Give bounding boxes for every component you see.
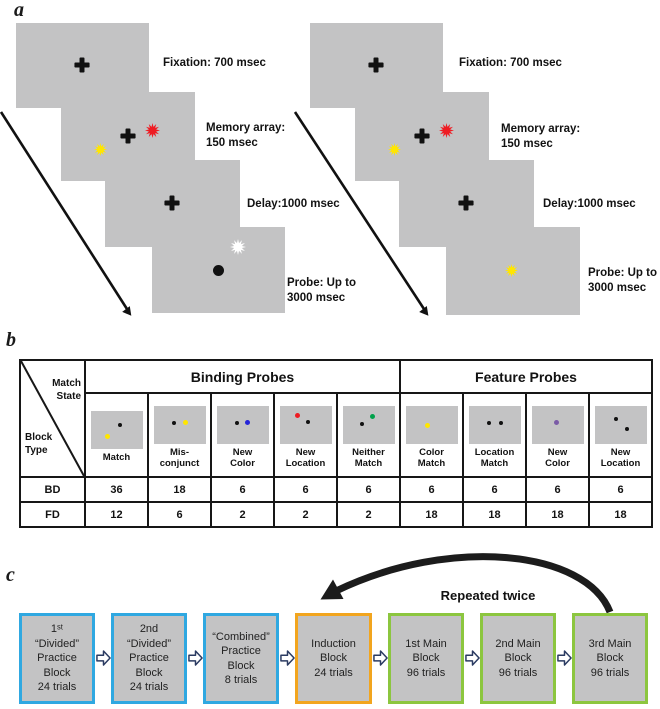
- panel-c-label: c: [6, 565, 15, 585]
- flowbox-line: 2nd: [140, 622, 158, 637]
- column-label: Color Match: [401, 447, 462, 470]
- flowbox-line: 1st Main: [405, 637, 447, 652]
- flowbox-main-2: 2nd Main Block 96 trials: [480, 613, 556, 704]
- flowbox-practice-2: 2nd “Divided” Practice Block 24 trials: [111, 613, 187, 704]
- mini-display-misconjunct: [154, 406, 206, 444]
- group-header-binding-probes: Binding Probes: [85, 360, 400, 393]
- flowbox-line: Block: [136, 666, 163, 681]
- fixation-caption-left: Fixation: 700 msec: [163, 56, 266, 71]
- probe-cell-new-location-binding: New Location: [274, 393, 337, 477]
- flowbox-line: Induction: [311, 637, 356, 652]
- mini-display-match: [91, 411, 143, 449]
- fd-value: 6: [148, 502, 211, 527]
- yellow-starburst-icon: [94, 143, 107, 156]
- flow-arrow-icon: [96, 649, 111, 667]
- flowbox-line: Block: [505, 651, 532, 666]
- flow-arrow-icon: [465, 649, 480, 667]
- probe-caption-left: Probe: Up to 3000 msec: [287, 276, 356, 305]
- red-starburst-icon: [145, 123, 160, 138]
- bd-value: 6: [337, 477, 400, 502]
- fd-row-label: FD: [20, 502, 85, 527]
- flowbox-main-3: 3rd Main Block 96 trials: [572, 613, 648, 704]
- bd-value: 6: [463, 477, 526, 502]
- flowbox-line: Block: [597, 651, 624, 666]
- flowbox-line: 24 trials: [38, 680, 77, 695]
- probe-cell-neither-match: Neither Match: [337, 393, 400, 477]
- fd-value: 2: [337, 502, 400, 527]
- column-label: Neither Match: [338, 447, 399, 470]
- flowbox-line: 2nd Main: [495, 637, 540, 652]
- flow-arrow-icon: [373, 649, 388, 667]
- bd-value: 6: [274, 477, 337, 502]
- fixation-cross-icon: [414, 128, 430, 144]
- corner-block-type-label: Block Type: [25, 431, 52, 457]
- flowbox-line: Practice: [221, 644, 261, 659]
- delay-caption-left: Delay:1000 msec: [247, 197, 340, 212]
- fixation-cross-icon: [164, 195, 180, 211]
- flowbox-line: “Divided”: [127, 637, 171, 652]
- mini-display-location-match: [469, 406, 521, 444]
- flowbox-line: “Combined”: [212, 630, 269, 645]
- mini-display-neither-match: [343, 406, 395, 444]
- bd-value: 6: [526, 477, 589, 502]
- flowbox-line: 1ˢᵗ: [51, 622, 63, 637]
- flowbox-line: Practice: [37, 651, 77, 666]
- probe-screen-right: [446, 227, 580, 315]
- column-label: New Color: [212, 447, 273, 470]
- mini-display-new-location-feature: [595, 406, 647, 444]
- flowbox-line: 24 trials: [130, 680, 169, 695]
- figure-page: a Fixation: 700 msec Memory ar: [0, 0, 660, 709]
- fixation-cross-icon: [120, 128, 136, 144]
- probe-cell-match: Match: [85, 393, 148, 477]
- bd-value: 6: [400, 477, 463, 502]
- yellow-starburst-icon: [388, 143, 401, 156]
- black-probe-dot: [213, 265, 224, 276]
- flowbox-practice-combined: “Combined” Practice Block 8 trials: [203, 613, 279, 704]
- flowbox-line: Block: [413, 651, 440, 666]
- column-label: New Color: [527, 447, 588, 470]
- memory-caption-left: Memory array: 150 msec: [206, 121, 285, 150]
- mini-display-new-color-binding: [217, 406, 269, 444]
- probe-cell-new-location-feature: New Location: [589, 393, 652, 477]
- flow-arrow-icon: [557, 649, 572, 667]
- fd-value: 2: [211, 502, 274, 527]
- flow-arrow-icon: [188, 649, 203, 667]
- flowbox-line: Block: [228, 659, 255, 674]
- flowbox-line: Practice: [129, 651, 169, 666]
- delay-caption-right: Delay:1000 msec: [543, 197, 636, 212]
- flowbox-line: Block: [320, 651, 347, 666]
- fd-value: 18: [463, 502, 526, 527]
- memory-caption-right: Memory array: 150 msec: [501, 122, 580, 151]
- bd-value: 6: [211, 477, 274, 502]
- yellow-starburst-icon: [505, 264, 518, 277]
- group-header-feature-probes: Feature Probes: [400, 360, 652, 393]
- fd-row: FD 12 6 2 2 2 18 18 18 18: [20, 502, 652, 527]
- probe-caption-right: Probe: Up to 3000 msec: [588, 266, 657, 295]
- bd-row: BD 36 18 6 6 6 6 6 6 6: [20, 477, 652, 502]
- flowbox-line: 96 trials: [591, 666, 630, 681]
- fd-value: 18: [526, 502, 589, 527]
- column-label: Location Match: [464, 447, 525, 470]
- panel-a-label: a: [14, 0, 24, 20]
- flowbox-line: 3rd Main: [589, 637, 632, 652]
- flow-arrow-icon: [280, 649, 295, 667]
- flowbox-line: “Divided”: [35, 637, 79, 652]
- flowbox-practice-1: 1ˢᵗ “Divided” Practice Block 24 trials: [19, 613, 95, 704]
- mini-display-color-match: [406, 406, 458, 444]
- probe-cell-new-color-feature: New Color: [526, 393, 589, 477]
- bd-row-label: BD: [20, 477, 85, 502]
- fixation-cross-icon: [368, 57, 384, 73]
- red-starburst-icon: [439, 123, 454, 138]
- flowbox-main-1: 1st Main Block 96 trials: [388, 613, 464, 704]
- flowbox-line: 8 trials: [225, 673, 257, 688]
- probe-count-table: Match State Block Type Binding Probes Fe…: [19, 359, 653, 528]
- flowbox-induction: Induction Block 24 trials: [295, 613, 372, 704]
- mini-display-new-color-feature: [532, 406, 584, 444]
- flowbox-line: 96 trials: [499, 666, 538, 681]
- probe-cell-location-match: Location Match: [463, 393, 526, 477]
- column-label: Match: [86, 452, 147, 464]
- column-label: Mis- conjunct: [149, 447, 210, 470]
- probe-cell-color-match: Color Match: [400, 393, 463, 477]
- probe-example-row: Match Mis- conjunct New Color: [20, 393, 652, 477]
- fd-value: 2: [274, 502, 337, 527]
- probe-cell-new-color-binding: New Color: [211, 393, 274, 477]
- table-corner-cell: Match State Block Type: [20, 360, 85, 477]
- white-starburst-icon: [230, 239, 246, 255]
- fd-value: 12: [85, 502, 148, 527]
- fd-value: 18: [589, 502, 652, 527]
- flowbox-line: 96 trials: [407, 666, 446, 681]
- mini-display-new-location-binding: [280, 406, 332, 444]
- fixation-cross-icon: [74, 57, 90, 73]
- corner-match-state-label: Match State: [52, 377, 81, 403]
- bd-value: 6: [589, 477, 652, 502]
- fixation-cross-icon: [458, 195, 474, 211]
- repeat-note: Repeated twice: [418, 588, 558, 603]
- bd-value: 18: [148, 477, 211, 502]
- bd-value: 36: [85, 477, 148, 502]
- fd-value: 18: [400, 502, 463, 527]
- probe-cell-misconjunct: Mis- conjunct: [148, 393, 211, 477]
- fixation-caption-right: Fixation: 700 msec: [459, 56, 562, 71]
- probe-screen-left: [152, 227, 285, 313]
- column-label: New Location: [590, 447, 651, 470]
- flowbox-line: Block: [44, 666, 71, 681]
- column-label: New Location: [275, 447, 336, 470]
- flowbox-line: 24 trials: [314, 666, 353, 681]
- panel-b-label: b: [6, 330, 16, 350]
